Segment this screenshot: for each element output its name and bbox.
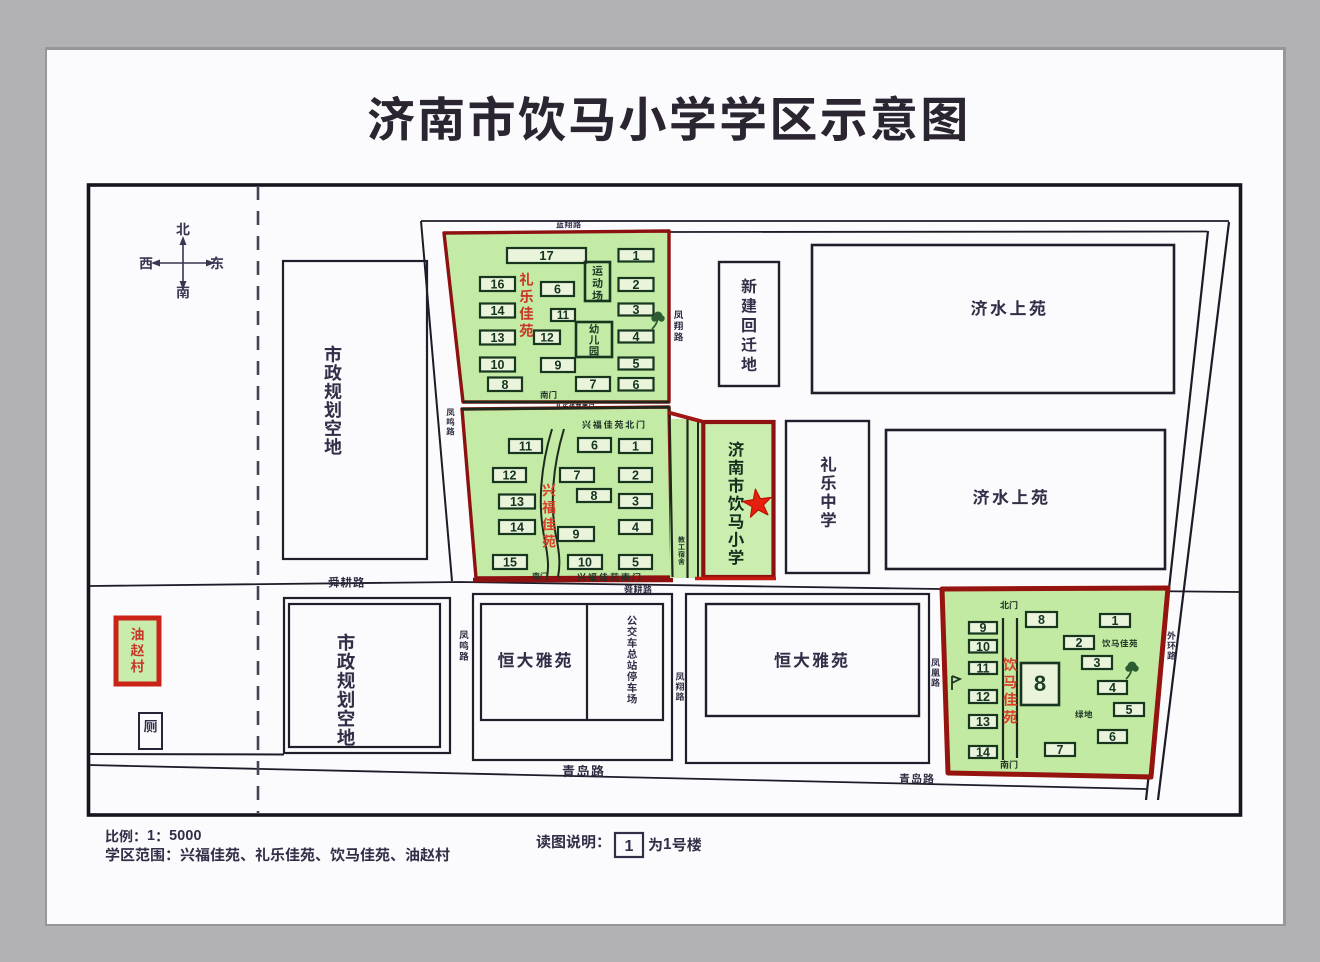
svg-text:6: 6	[591, 439, 598, 453]
svg-text:2: 2	[633, 278, 640, 292]
svg-text:12: 12	[503, 469, 517, 483]
svg-text:14: 14	[510, 521, 524, 535]
svg-text:1: 1	[147, 828, 155, 844]
svg-text:5: 5	[1126, 703, 1133, 717]
svg-text:0: 0	[185, 828, 193, 844]
svg-text:14: 14	[491, 304, 505, 318]
svg-text:1: 1	[632, 440, 639, 454]
svg-text:3: 3	[633, 303, 640, 317]
svg-text:8: 8	[591, 489, 598, 503]
svg-text:2: 2	[632, 469, 639, 483]
svg-text:12: 12	[540, 331, 554, 345]
svg-text:13: 13	[510, 495, 524, 509]
svg-text:0: 0	[177, 828, 185, 844]
svg-text:10: 10	[976, 640, 990, 654]
svg-text:6: 6	[554, 283, 561, 297]
svg-text:12: 12	[976, 690, 990, 704]
svg-text:1: 1	[633, 249, 640, 263]
svg-text:7: 7	[1057, 743, 1064, 757]
svg-text:3: 3	[1094, 656, 1101, 670]
svg-text:4: 4	[633, 330, 640, 344]
svg-text:7: 7	[574, 469, 581, 483]
svg-text:11: 11	[519, 440, 532, 454]
svg-text:5: 5	[633, 357, 640, 371]
svg-text:9: 9	[980, 621, 987, 635]
svg-text:17: 17	[539, 248, 553, 263]
svg-text:5: 5	[632, 556, 639, 570]
svg-text:6: 6	[1109, 730, 1116, 744]
svg-text:10: 10	[491, 358, 505, 372]
svg-text:8: 8	[502, 378, 509, 392]
svg-text:1: 1	[1112, 614, 1119, 628]
svg-text:5: 5	[169, 828, 177, 844]
svg-text:4: 4	[632, 521, 639, 535]
svg-text:13: 13	[491, 331, 505, 345]
svg-text:8: 8	[1038, 613, 1045, 627]
svg-text:13: 13	[976, 715, 990, 729]
svg-text:0: 0	[194, 828, 202, 844]
svg-text:7: 7	[590, 378, 597, 392]
svg-text:11: 11	[557, 310, 570, 322]
svg-text:2: 2	[1076, 636, 1083, 650]
svg-text:15: 15	[503, 556, 517, 570]
svg-text:1: 1	[663, 836, 672, 853]
svg-text:6: 6	[633, 378, 640, 392]
svg-text:8: 8	[1034, 671, 1046, 696]
svg-text:9: 9	[555, 359, 562, 373]
svg-text:9: 9	[573, 528, 580, 542]
svg-text:16: 16	[491, 278, 505, 292]
svg-text:10: 10	[578, 556, 592, 570]
svg-text:1: 1	[625, 838, 634, 855]
svg-text:11: 11	[976, 662, 989, 676]
svg-text:14: 14	[976, 746, 990, 760]
svg-text:4: 4	[1109, 681, 1116, 695]
svg-text:3: 3	[632, 495, 639, 509]
